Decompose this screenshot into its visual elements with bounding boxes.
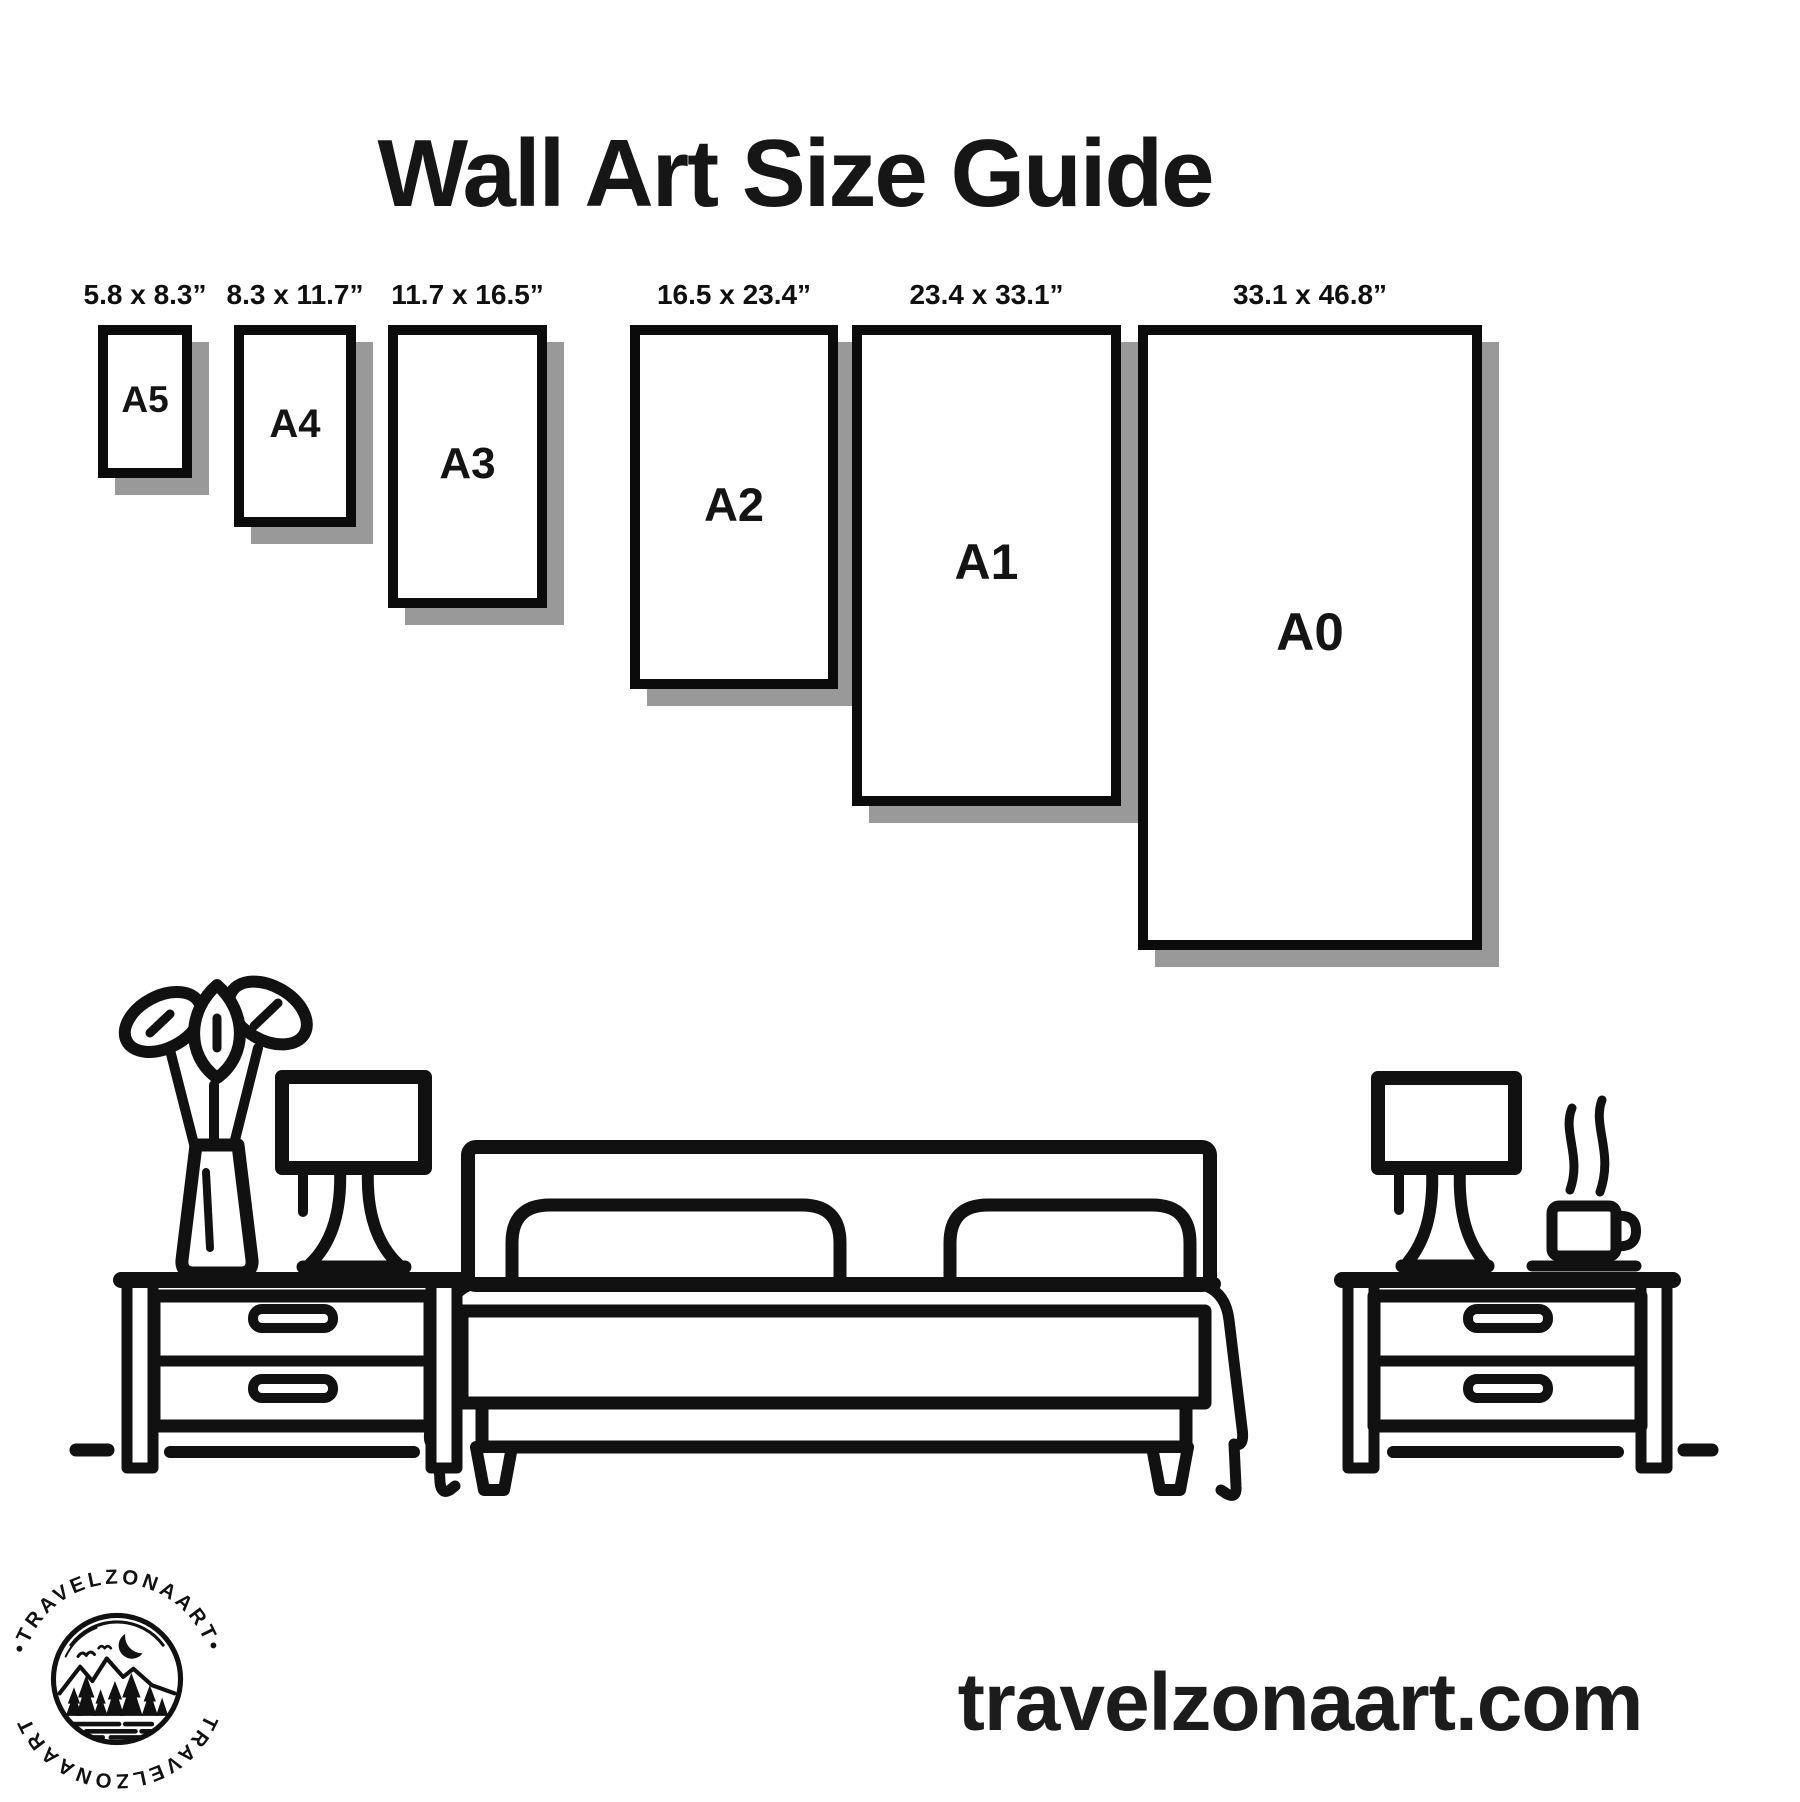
moon-icon <box>119 1634 143 1659</box>
paper-a2: A2 <box>630 325 838 689</box>
table-lamp-right-icon <box>1378 1078 1515 1266</box>
website-url: travelzonaart.com <box>920 1656 1680 1750</box>
steam-icon <box>1569 1108 1574 1190</box>
size-name-a5: A5 <box>121 379 168 421</box>
size-name-a2: A2 <box>704 477 764 532</box>
bird-icon <box>78 1652 94 1656</box>
size-frame-a1: 23.4 x 33.1” A1 <box>852 325 1121 806</box>
paper-a1: A1 <box>852 325 1121 806</box>
bird-icon <box>99 1646 111 1648</box>
size-name-a0: A0 <box>1276 602 1344 663</box>
dimension-label-a0: 33.1 x 46.8” <box>1233 279 1387 311</box>
dimension-label-a1: 23.4 x 33.1” <box>909 279 1063 311</box>
bedroom-scene-illustration <box>0 860 1800 1540</box>
size-name-a1: A1 <box>955 533 1019 591</box>
size-frame-a3: 11.7 x 16.5” A3 <box>388 325 547 608</box>
size-frame-a4: 8.3 x 11.7” A4 <box>234 325 356 527</box>
logo-emblem <box>53 1615 180 1742</box>
dimension-label-a3: 11.7 x 16.5” <box>391 279 544 311</box>
paper-a0: A0 <box>1138 325 1482 950</box>
size-name-a4: A4 <box>269 402 320 447</box>
bed-icon <box>429 1147 1242 1495</box>
dimension-label-a5: 5.8 x 8.3” <box>84 279 207 311</box>
size-frame-a2: 16.5 x 23.4” A2 <box>630 325 838 689</box>
nightstand-right-icon <box>1342 1280 1673 1468</box>
brand-logo: •TRAVELZONAART• TRAVELZONAART <box>0 1556 240 1802</box>
svg-text:•TRAVELZONAART•: •TRAVELZONAART• <box>8 1565 227 1655</box>
size-frame-a0: 33.1 x 46.8” A0 <box>1138 325 1482 950</box>
size-frame-a5: 5.8 x 8.3” A5 <box>98 325 192 478</box>
dimension-label-a4: 8.3 x 11.7” <box>226 279 363 311</box>
nightstand-left-icon <box>121 1280 463 1468</box>
paper-a5: A5 <box>98 325 192 478</box>
dimension-label-a2: 16.5 x 23.4” <box>657 279 811 311</box>
size-guide-poster: Wall Art Size Guide 5.8 x 8.3” A5 8.3 x … <box>0 0 1800 1800</box>
steam-icon <box>1599 1100 1605 1192</box>
size-name-a3: A3 <box>439 439 495 489</box>
coffee-cup-icon <box>1532 1100 1636 1266</box>
paper-a3: A3 <box>388 325 547 608</box>
table-lamp-left-icon <box>282 1077 425 1267</box>
paper-a4: A4 <box>234 325 356 527</box>
page-title: Wall Art Size Guide <box>295 124 1295 225</box>
